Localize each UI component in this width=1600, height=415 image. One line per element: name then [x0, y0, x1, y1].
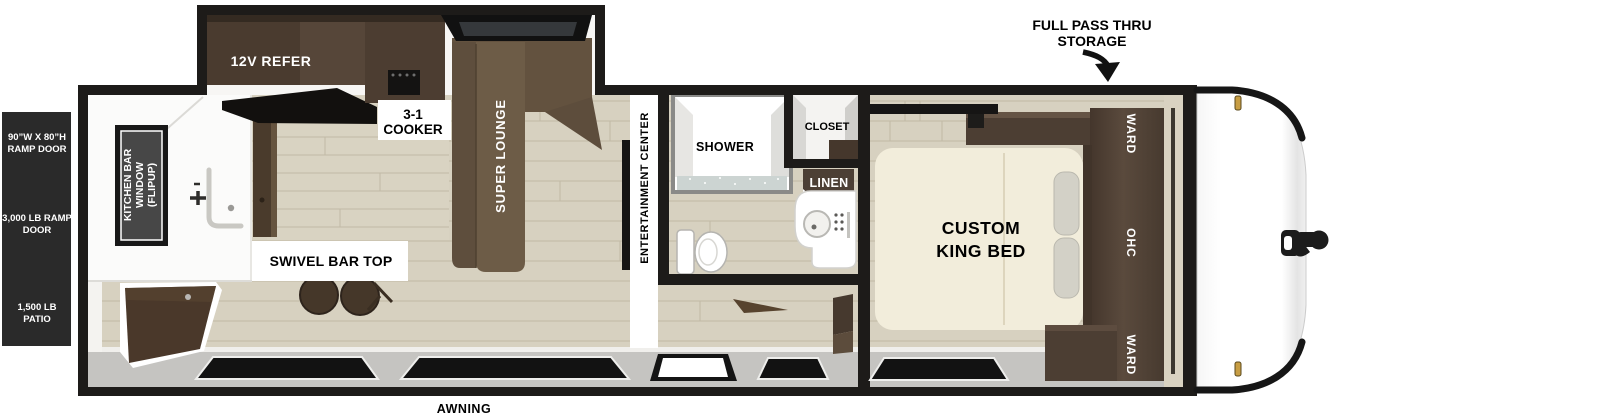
svg-text:WINDOW: WINDOW: [134, 162, 146, 208]
svg-text:STORAGE: STORAGE: [1058, 33, 1127, 49]
svg-text:3-1: 3-1: [403, 107, 423, 122]
svg-text:1,500 LB: 1,500 LB: [17, 302, 56, 313]
svg-text:WARD: WARD: [1124, 114, 1138, 155]
svg-text:WARD: WARD: [1124, 335, 1138, 376]
svg-text:KITCHEN BAR: KITCHEN BAR: [122, 148, 134, 221]
svg-text:RAMP DOOR: RAMP DOOR: [8, 144, 67, 155]
svg-text:OHC: OHC: [1124, 228, 1138, 258]
svg-text:FULL PASS THRU: FULL PASS THRU: [1032, 17, 1151, 33]
svg-text:PATIO: PATIO: [23, 314, 51, 325]
svg-text:COOKER: COOKER: [383, 122, 443, 137]
svg-text:(FLIPUP): (FLIPUP): [146, 163, 158, 207]
svg-text:AWNING: AWNING: [437, 402, 491, 415]
svg-text:SWIVEL BAR TOP: SWIVEL BAR TOP: [270, 253, 393, 269]
svg-text:ENTERTAINMENT CENTER: ENTERTAINMENT CENTER: [639, 112, 651, 264]
svg-text:SUPER LOUNGE: SUPER LOUNGE: [493, 99, 508, 213]
svg-text:90”W X 80”H: 90”W X 80”H: [8, 132, 66, 143]
svg-text:LINEN: LINEN: [810, 176, 849, 190]
svg-text:SHOWER: SHOWER: [696, 140, 754, 154]
svg-text:KING BED: KING BED: [936, 241, 1026, 261]
svg-text:12V REFER: 12V REFER: [231, 53, 312, 69]
svg-text:DOOR: DOOR: [23, 225, 52, 236]
svg-text:CLOSET: CLOSET: [805, 121, 850, 133]
svg-text:3,000 LB RAMP: 3,000 LB RAMP: [2, 213, 72, 224]
svg-text:CUSTOM: CUSTOM: [942, 218, 1021, 238]
